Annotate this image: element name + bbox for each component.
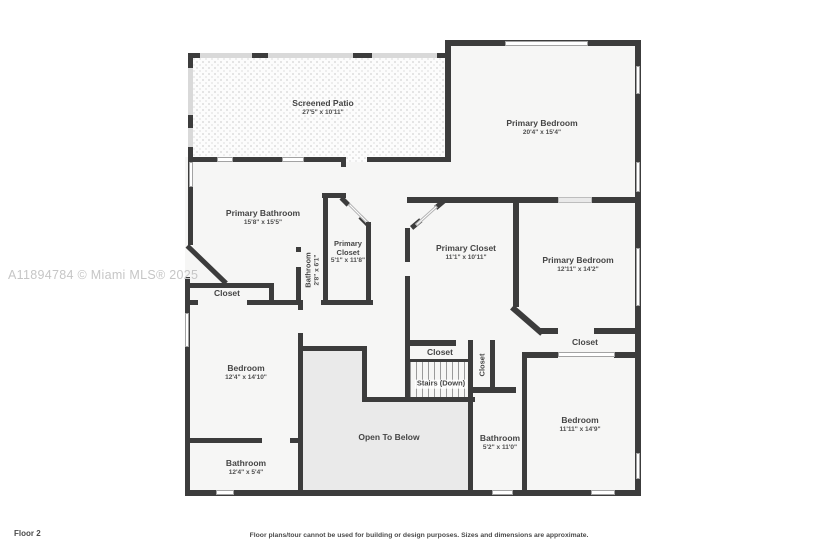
room-dims: 11'1" x 10'11" bbox=[436, 254, 496, 262]
window bbox=[636, 248, 640, 306]
wall bbox=[367, 157, 449, 162]
wall bbox=[405, 340, 456, 346]
room-label-screened-patio: Screened Patio 27'5" x 10'11" bbox=[292, 99, 353, 117]
wall bbox=[304, 157, 343, 162]
wall bbox=[341, 157, 346, 167]
room-label-bedroom-right: Bedroom 11'11" x 14'9" bbox=[559, 416, 600, 434]
wall bbox=[468, 340, 473, 490]
wall bbox=[468, 387, 516, 393]
wall bbox=[298, 305, 303, 310]
room-name: Bathroom bbox=[480, 434, 520, 444]
room-name: Bedroom bbox=[559, 416, 600, 426]
wall bbox=[362, 397, 475, 402]
room-dims: 11'11" x 14'9" bbox=[559, 426, 600, 434]
wall bbox=[185, 300, 198, 305]
wall bbox=[614, 352, 641, 358]
room-name: Closet bbox=[427, 348, 453, 358]
room-label-stairs: Stairs (Down) bbox=[415, 380, 467, 389]
wall bbox=[410, 359, 468, 362]
window bbox=[636, 453, 640, 479]
window bbox=[189, 162, 193, 187]
room-dims: 12'11" x 14'2" bbox=[542, 266, 613, 274]
wall bbox=[513, 197, 519, 307]
room-name: Screened Patio bbox=[292, 99, 353, 109]
wall bbox=[353, 53, 372, 58]
wall bbox=[303, 346, 367, 351]
wall bbox=[490, 340, 495, 392]
room-label-bathroom-small: Bathroom 2'8" x 6'1" bbox=[304, 252, 321, 287]
room-dims: 5'2" x 11'0" bbox=[480, 444, 520, 452]
room-name: Primary Bedroom bbox=[506, 119, 577, 129]
wall bbox=[233, 157, 282, 162]
window bbox=[591, 490, 615, 495]
wall bbox=[252, 53, 268, 58]
room-name: Bedroom bbox=[225, 364, 267, 374]
wall bbox=[188, 115, 193, 128]
wall bbox=[540, 328, 558, 334]
room-name: Primary Closet bbox=[325, 240, 371, 257]
wall bbox=[405, 228, 410, 262]
wall bbox=[594, 328, 641, 334]
room-name: Primary Bathroom bbox=[226, 209, 300, 219]
wall bbox=[522, 352, 558, 358]
screen-wall bbox=[188, 53, 449, 58]
room-name: Open To Below bbox=[358, 433, 419, 443]
room-dims: 5'1" x 11'8" bbox=[325, 257, 371, 265]
wall bbox=[321, 300, 373, 305]
wall bbox=[296, 247, 301, 252]
wall bbox=[407, 197, 558, 203]
room-name: Closet bbox=[572, 338, 598, 348]
room-dims: 2'8" x 6'1" bbox=[313, 252, 321, 287]
floor-area bbox=[445, 40, 641, 162]
room-dims: 12'4" x 14'10" bbox=[225, 374, 267, 382]
floor-plan: Screened Patio 27'5" x 10'11" Primary Be… bbox=[0, 0, 825, 550]
wall bbox=[290, 438, 303, 443]
floor-label: Floor 2 bbox=[14, 529, 41, 538]
window bbox=[282, 157, 304, 162]
room-name: Closet bbox=[214, 289, 240, 299]
room-label-bathroom-bottom: Bathroom 12'4" x 5'4" bbox=[226, 459, 266, 477]
disclaimer-text: Floor plans/tour cannot be used for buil… bbox=[250, 532, 589, 539]
room-name: Bathroom bbox=[304, 252, 313, 287]
room-label-primary-bathroom: Primary Bathroom 15'8" x 15'5" bbox=[226, 209, 300, 227]
room-label-primary-bedroom-1: Primary Bedroom 20'4" x 15'4" bbox=[506, 119, 577, 137]
room-name: Primary Bedroom bbox=[542, 256, 613, 266]
mls-watermark: A11894784 © Miami MLS® 2025 bbox=[8, 268, 198, 282]
window bbox=[558, 352, 615, 357]
wall bbox=[592, 197, 641, 203]
room-label-primary-bedroom-2: Primary Bedroom 12'11" x 14'2" bbox=[542, 256, 613, 274]
room-name: Stairs (Down) bbox=[415, 380, 467, 389]
window bbox=[217, 157, 233, 162]
wall bbox=[362, 346, 367, 402]
room-dims: 27'5" x 10'11" bbox=[292, 109, 353, 117]
room-name: Primary Closet bbox=[436, 244, 496, 254]
room-name: Closet bbox=[479, 354, 488, 377]
wall bbox=[405, 276, 410, 399]
wall bbox=[522, 357, 527, 490]
room-name: Bathroom bbox=[226, 459, 266, 469]
wall bbox=[185, 277, 190, 496]
window bbox=[492, 490, 513, 495]
window bbox=[216, 490, 234, 495]
room-dims: 12'4" x 5'4" bbox=[226, 469, 266, 477]
wall bbox=[188, 147, 193, 157]
wall bbox=[247, 300, 303, 305]
room-label-closet-above-stairs: Closet bbox=[427, 348, 453, 358]
wall bbox=[188, 53, 193, 68]
room-dims: 15'8" x 15'5" bbox=[226, 219, 300, 227]
open-to-below-area bbox=[303, 351, 367, 402]
room-label-closet-left: Closet bbox=[214, 289, 240, 299]
window bbox=[636, 66, 640, 94]
open-to-below-area bbox=[303, 402, 473, 490]
room-label-bathroom-center: Bathroom 5'2" x 11'0" bbox=[480, 434, 520, 452]
door-opening bbox=[558, 197, 592, 203]
room-label-primary-closet-large: Primary Closet 11'1" x 10'11" bbox=[436, 244, 496, 262]
room-label-open-to-below: Open To Below bbox=[358, 433, 419, 443]
room-label-primary-closet-small: Primary Closet 5'1" x 11'8" bbox=[325, 240, 371, 266]
room-label-bedroom-left: Bedroom 12'4" x 14'10" bbox=[225, 364, 267, 382]
wall bbox=[185, 490, 641, 496]
room-dims: 20'4" x 15'4" bbox=[506, 129, 577, 137]
screen-wall bbox=[188, 58, 193, 157]
room-label-closet-hall: Closet bbox=[479, 354, 488, 377]
wall bbox=[298, 333, 303, 490]
window bbox=[505, 41, 588, 46]
wall bbox=[445, 40, 451, 162]
window bbox=[185, 313, 189, 347]
window bbox=[636, 162, 640, 192]
room-label-closet-right: Closet bbox=[572, 338, 598, 348]
wall bbox=[185, 438, 262, 443]
